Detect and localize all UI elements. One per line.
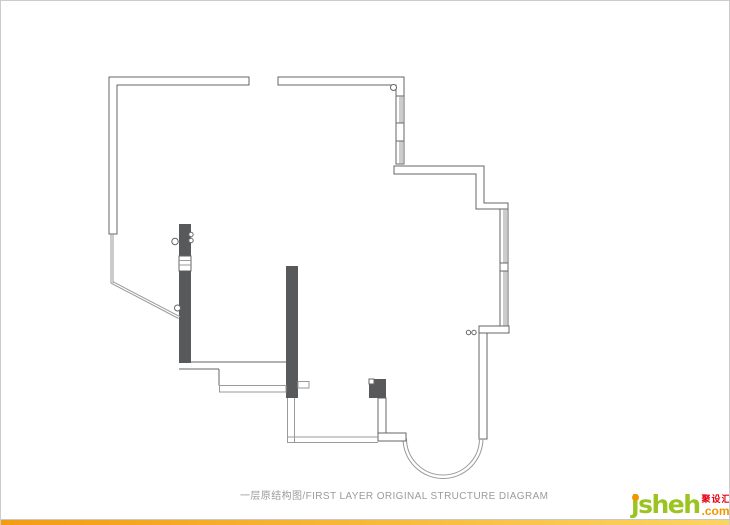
jsheh-logo: jsheh 聚设汇 .com [631, 492, 730, 518]
logo-cjk-text: 聚设汇 [702, 494, 730, 504]
logo-j-dot-icon [632, 494, 639, 501]
detail-circle-e [472, 330, 476, 334]
diagram-caption: 一层原结构图/FIRST LAYER ORIGINAL STRUCTURE DI… [240, 490, 548, 503]
window-diagonal-line [111, 283, 179, 319]
wall-top-left [109, 77, 249, 234]
logo-wordmark: jsheh [631, 492, 700, 518]
wall-leg-s [378, 398, 386, 433]
column-w-lower [179, 271, 191, 363]
wall-se-vertical [479, 333, 487, 439]
floor-plan-page: 一层原结构图/FIRST LAYER ORIGINAL STRUCTURE DI… [0, 0, 730, 525]
detail-circle-ne [391, 85, 397, 91]
floor-plan-drawing [1, 1, 730, 525]
footer-accent-bar [1, 520, 729, 525]
beam-stub [298, 382, 309, 389]
detail-circle-w [172, 238, 178, 244]
column-center [286, 266, 298, 398]
column-w-window-band [179, 256, 191, 271]
detail-circle-w [189, 238, 193, 242]
logo-wordmark-text: jsheh [631, 490, 700, 519]
wall-s-step [378, 433, 406, 441]
detail-circle-diagonal [175, 305, 181, 311]
logo-side-block: 聚设汇 .com [702, 494, 730, 518]
wall-right-step [394, 166, 508, 209]
logo-tld-text: .com [702, 504, 730, 518]
window-diagonal-line [113, 282, 180, 317]
column-s-notch [369, 379, 374, 384]
wall-step-e [479, 326, 509, 333]
detail-circle-w [189, 232, 193, 236]
window-mullion-e [500, 263, 508, 271]
detail-circle-e [466, 330, 470, 334]
wall-top-right [278, 77, 404, 96]
window-mullion-ne [396, 123, 404, 141]
floor-plan [109, 77, 509, 479]
wall-thin-mid [220, 386, 287, 393]
bay-arc-outer [403, 439, 483, 479]
